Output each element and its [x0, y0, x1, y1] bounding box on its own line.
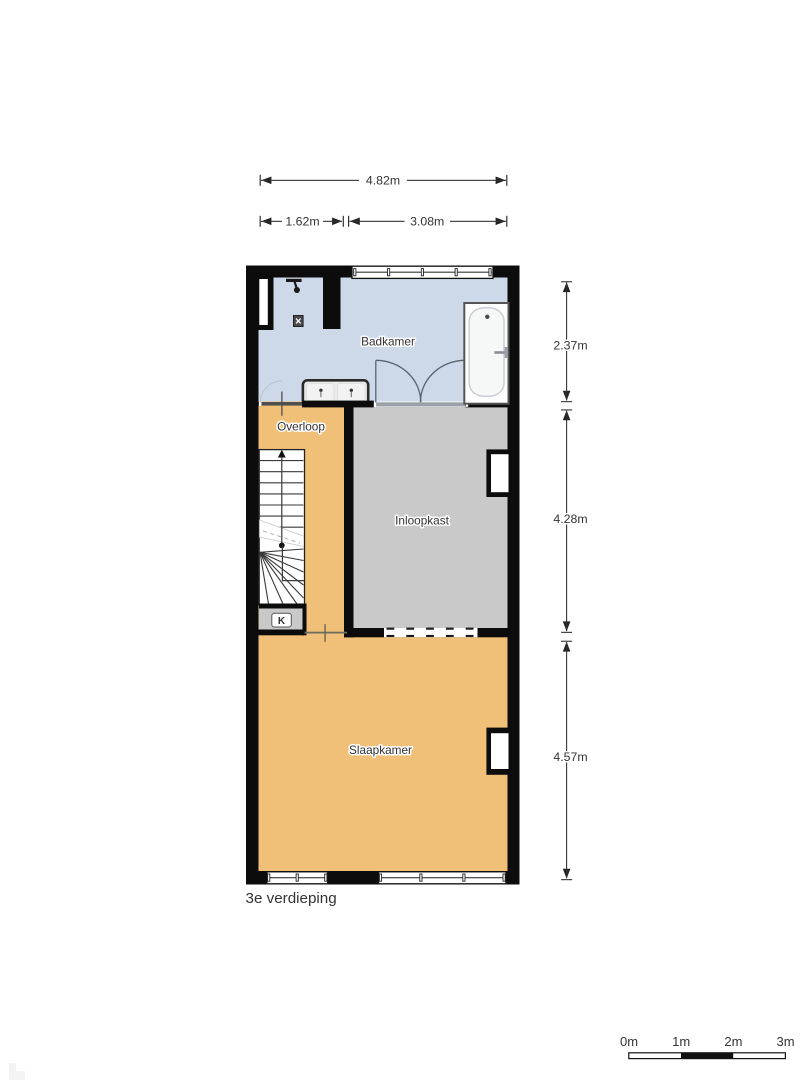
svg-text:4.57m: 4.57m: [553, 750, 587, 764]
svg-text:3.08m: 3.08m: [410, 214, 444, 228]
svg-text:3m: 3m: [776, 1034, 794, 1049]
svg-text:4.82m: 4.82m: [366, 173, 400, 187]
svg-text:2m: 2m: [724, 1034, 742, 1049]
svg-text:Badkamer: Badkamer: [361, 335, 415, 349]
svg-text:1.62m: 1.62m: [285, 214, 319, 228]
svg-text:Inloopkast: Inloopkast: [395, 514, 449, 528]
svg-text:K: K: [278, 616, 286, 627]
svg-text:4.28m: 4.28m: [553, 512, 587, 526]
svg-text:Overloop: Overloop: [277, 420, 325, 434]
svg-text:2.37m: 2.37m: [553, 339, 587, 353]
svg-text:3e verdieping: 3e verdieping: [246, 890, 337, 907]
svg-text:Slaapkamer: Slaapkamer: [349, 743, 412, 757]
svg-text:0m: 0m: [620, 1034, 638, 1049]
svg-text:1m: 1m: [672, 1034, 690, 1049]
